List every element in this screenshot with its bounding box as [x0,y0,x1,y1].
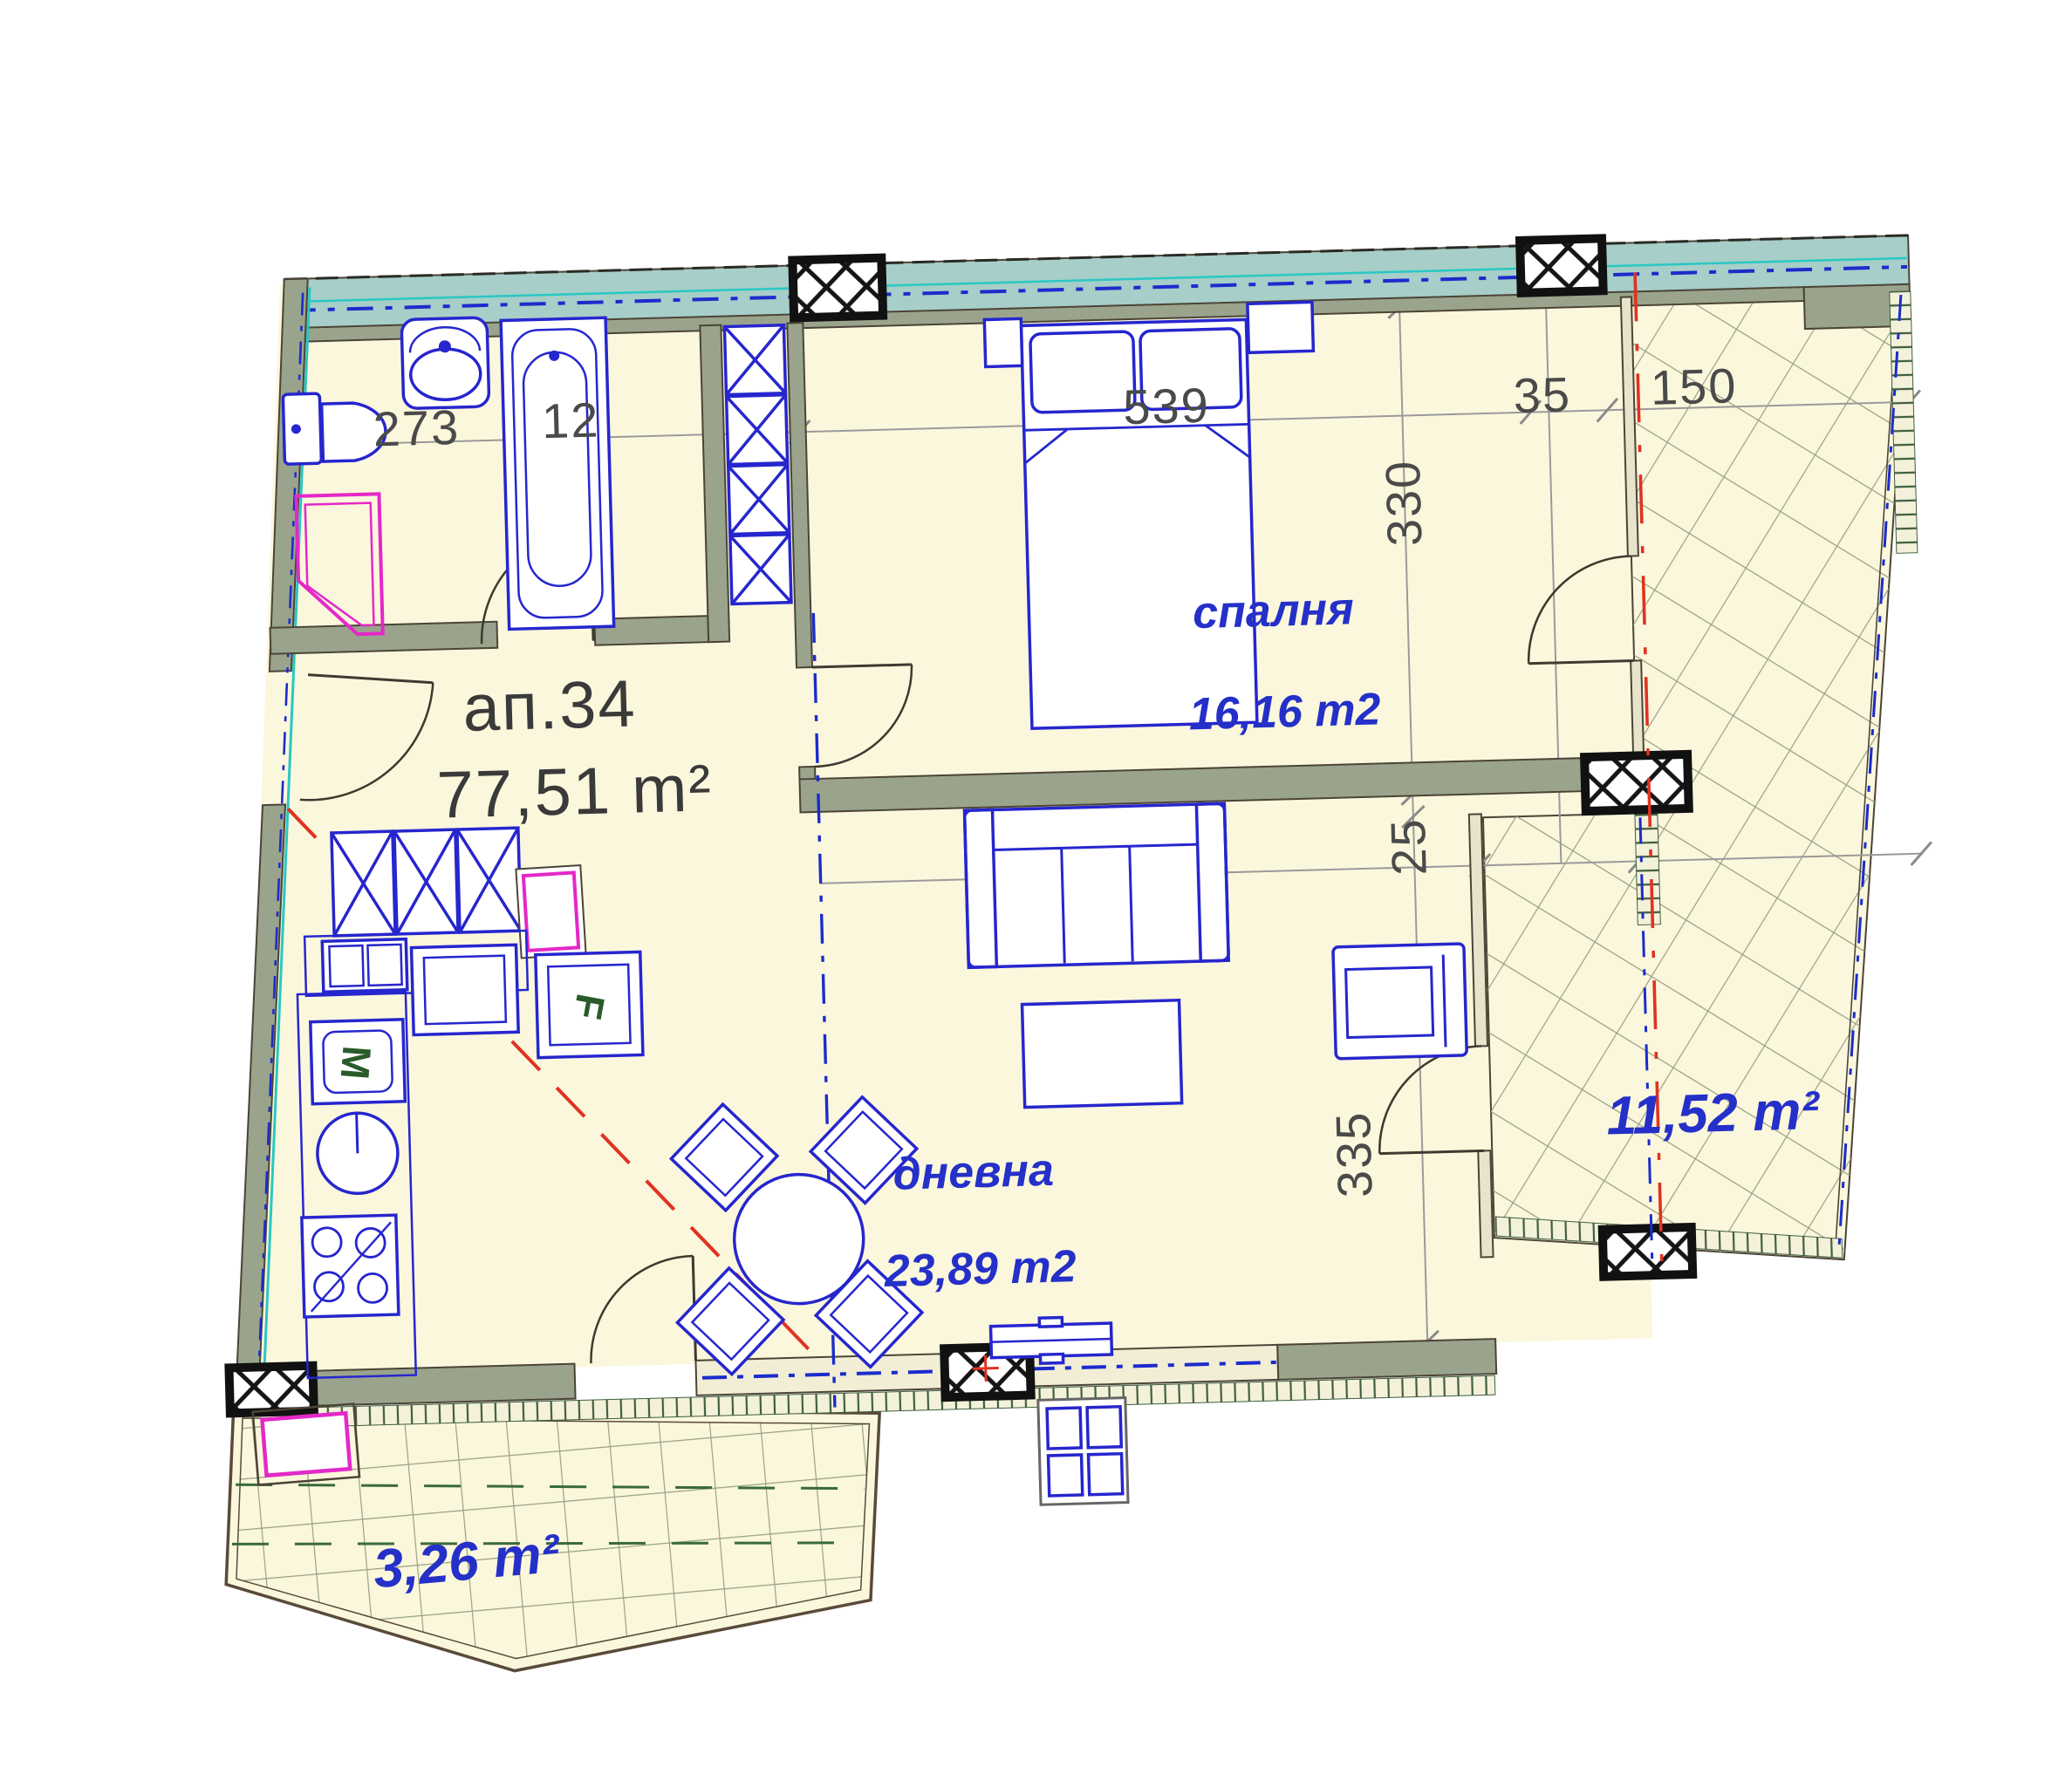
bathroom-sink [401,317,489,409]
living-area-label: 23,89 m2 [884,1244,1077,1294]
washer-letter: M [335,1044,378,1081]
kitchen-upper-sink [322,939,407,993]
ac-unit [1038,1398,1128,1505]
kitchen-round-sink [317,1112,399,1194]
dim-150: 150 [1650,361,1738,413]
coffee-table [1022,1000,1182,1108]
dim-273: 273 [373,403,461,454]
bedroom-area-label: 16,16 m2 [1188,686,1381,737]
dim-12: 12 [541,395,600,446]
floor-plan-svg [0,0,2072,1781]
dim-330: 330 [1378,459,1430,547]
bedroom-name-label: спалня [1192,586,1354,636]
dim-539: 539 [1123,381,1211,433]
nightstand-left [984,318,1022,366]
wardrobe [724,325,791,604]
armchair [1333,944,1467,1059]
floor-plan: ап.34 77,51 m² спалня 16,16 m2 дневна 23… [0,0,2072,1781]
terrace-area-label: 11,52 m² [1606,1084,1820,1144]
floor-plan-page: ап.34 77,51 m² спалня 16,16 m2 дневна 23… [0,0,2072,1781]
dim-25: 25 [1384,817,1434,877]
dishwasher [412,945,519,1034]
apartment-area-label: 77,51 m² [436,755,714,829]
living-name-label: дневна [892,1148,1055,1198]
bathtub [501,317,614,629]
sofa [965,803,1229,967]
apartment-number-label: ап.34 [462,671,638,741]
dim-335: 335 [1329,1110,1380,1198]
dim-35: 35 [1513,370,1572,420]
kitchen-cabinet-row [332,828,521,936]
cooktop [302,1215,399,1317]
nightstand-right [1248,302,1313,352]
